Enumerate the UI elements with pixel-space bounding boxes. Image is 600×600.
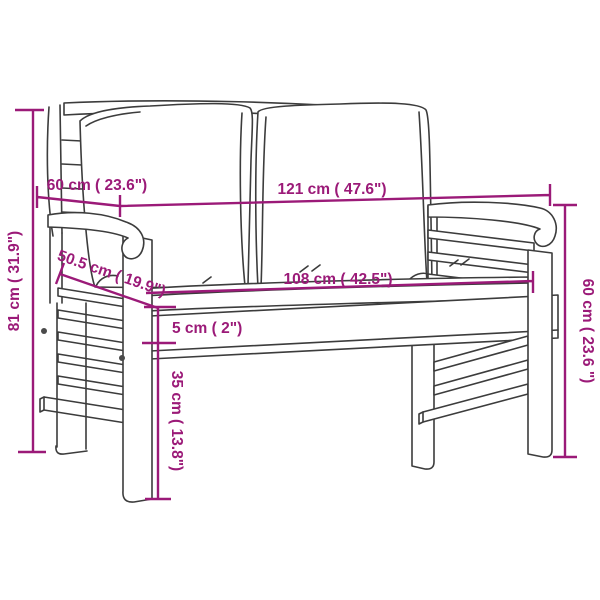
- dimension-label-total-height: 81 cm ( 31.9"): [6, 231, 23, 331]
- dimension-label-total-width: 121 cm ( 47.6"): [277, 181, 386, 198]
- dimension-label-seat-width: 108 cm ( 42.5"): [283, 271, 392, 288]
- dimension-label-armrest-height: 60 cm ( 23.6 "): [579, 279, 596, 384]
- screw-icon: [119, 355, 125, 361]
- dimension-label-seat-height: 35 cm ( 13.8"): [168, 371, 185, 471]
- dimension-label-cushion-thickness: 5 cm ( 2"): [172, 320, 242, 337]
- dimension-armrest-height: 60 cm ( 23.6 "): [553, 205, 596, 457]
- right-underframe: [419, 336, 528, 424]
- bench-drawing: [40, 101, 558, 502]
- back-pillow-left: [80, 104, 252, 288]
- dimension-diagram: 81 cm ( 31.9") 60 cm ( 23.6") 121 cm ( 4…: [0, 0, 600, 600]
- dimension-label-arm-depth: 60 cm ( 23.6"): [47, 177, 147, 194]
- screw-icon: [41, 328, 47, 334]
- bench-dimension-drawing: 81 cm ( 31.9") 60 cm ( 23.6") 121 cm ( 4…: [0, 0, 600, 600]
